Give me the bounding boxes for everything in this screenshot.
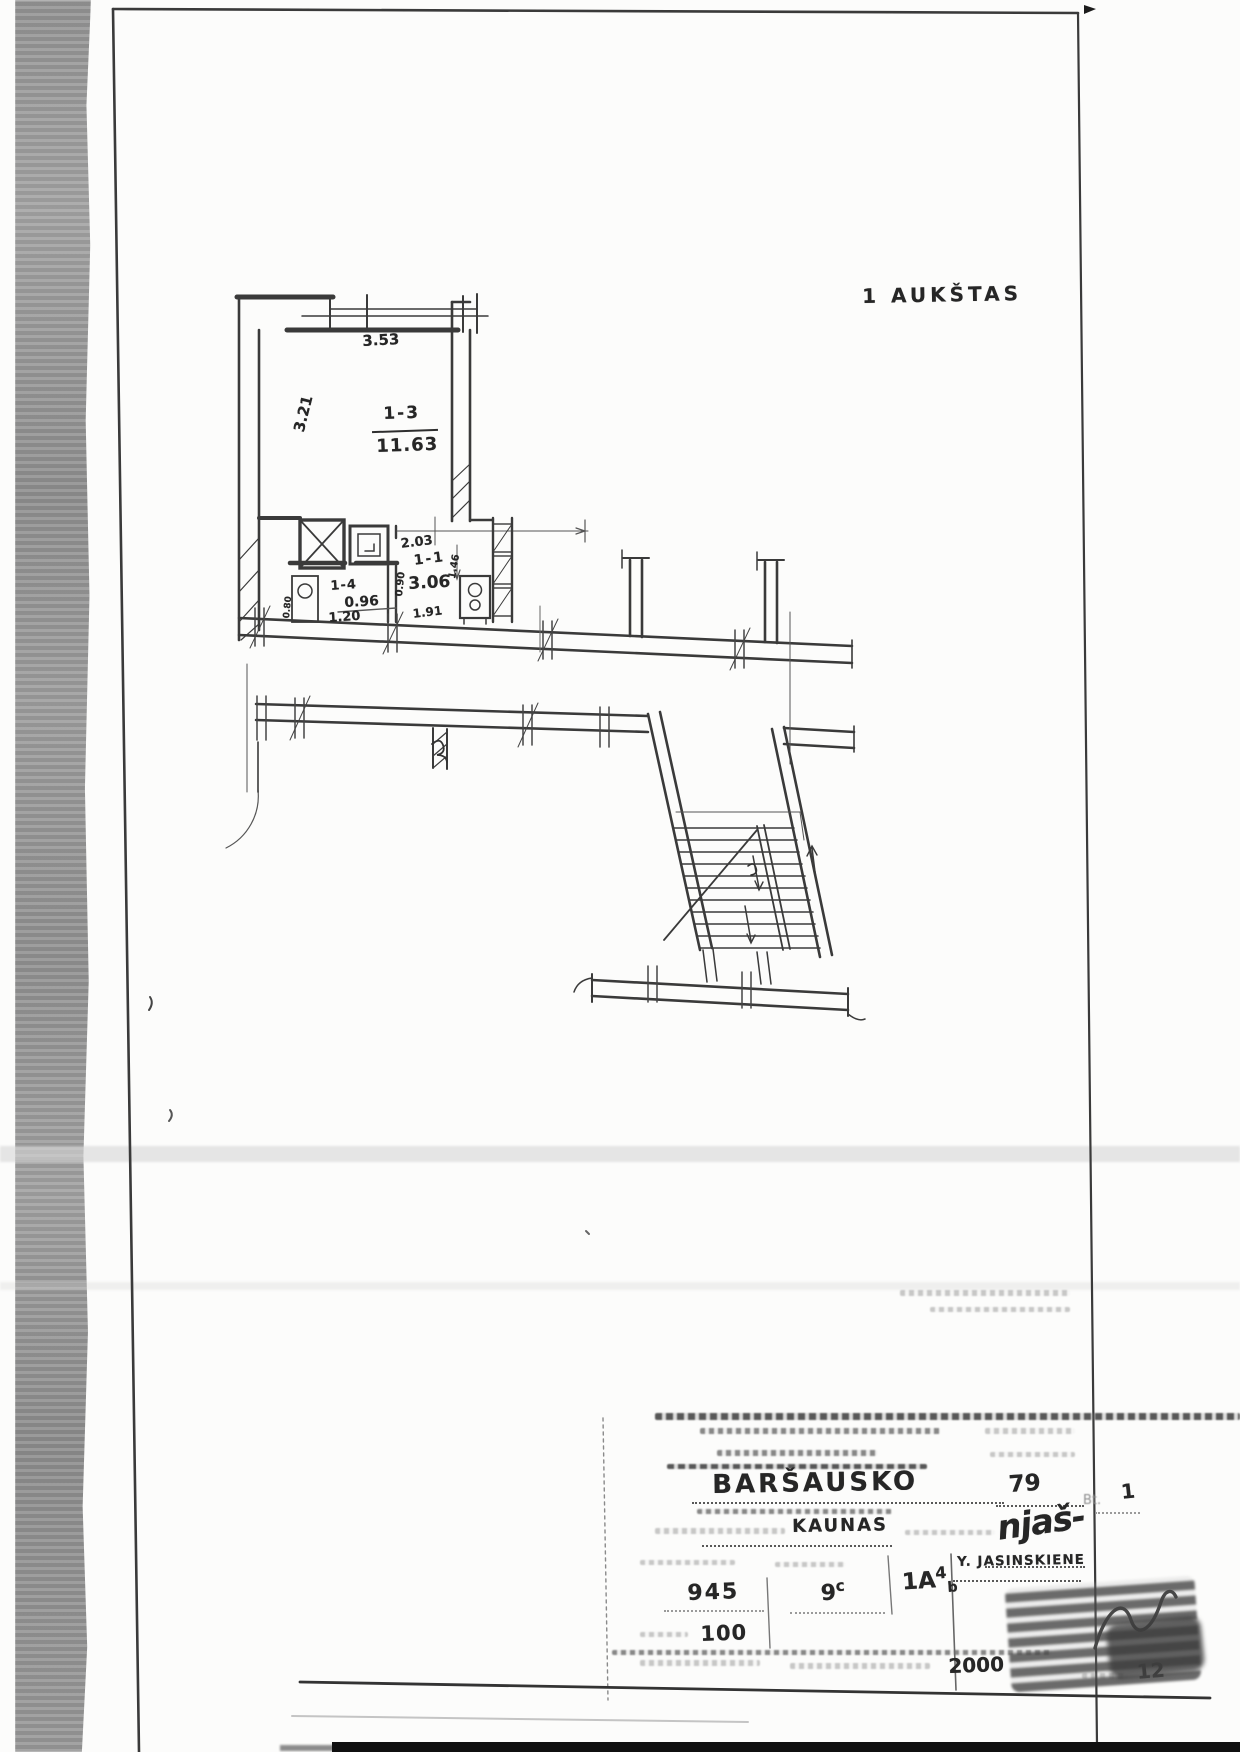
floor-title: 1 AUKŠTAS bbox=[862, 283, 1022, 306]
illegible-cell-caption-2 bbox=[775, 1562, 845, 1567]
city-dotted-line bbox=[702, 1545, 892, 1547]
illegible-corner-text-2 bbox=[930, 1307, 1070, 1312]
room-1-4-area: 0.96 bbox=[344, 594, 379, 610]
illegible-city-caption bbox=[655, 1528, 785, 1534]
city-name: KAUNAS bbox=[792, 1516, 888, 1536]
illegible-corner-text-1 bbox=[900, 1290, 1070, 1296]
apartment-dotted-line bbox=[1095, 1512, 1140, 1514]
illegible-header-row-1a bbox=[700, 1428, 940, 1434]
surveyor-dotted-line bbox=[953, 1580, 1081, 1582]
corridor-walls bbox=[226, 550, 854, 848]
room-1-3-area: 11.63 bbox=[376, 436, 439, 456]
surveyor-name: Y. JASINSKIENE bbox=[957, 1554, 1085, 1570]
illegible-date-text-1 bbox=[640, 1660, 760, 1666]
illegible-header-row-2b bbox=[990, 1452, 1075, 1457]
dim-191-label: 1.91 bbox=[412, 604, 443, 620]
illegible-mid-caption bbox=[905, 1530, 995, 1535]
room-1-3-number: 1-3 bbox=[383, 405, 420, 423]
house-number: 79 bbox=[1008, 1472, 1042, 1497]
year-value: 2000 bbox=[948, 1654, 1004, 1676]
illegible-scale-caption bbox=[640, 1632, 688, 1637]
office-stamp-blob bbox=[1105, 1615, 1205, 1680]
room-1-4-number: 1-4 bbox=[330, 578, 357, 593]
corner-mark-icon bbox=[1084, 5, 1096, 14]
street-name: BARŠAUSKO bbox=[712, 1468, 918, 1498]
street-dotted-line bbox=[692, 1502, 1004, 1504]
dim-203-label: 2.03 bbox=[400, 534, 433, 551]
staircase bbox=[574, 712, 865, 1020]
inventory-number: 945 bbox=[687, 1581, 740, 1605]
dim-120-label: 1.20 bbox=[328, 610, 361, 625]
illegible-header-row-1b bbox=[985, 1428, 1075, 1434]
apartment-number: 1 bbox=[1120, 1481, 1136, 1502]
title-block-top-edge bbox=[655, 1413, 1240, 1420]
illegible-cell-caption-1 bbox=[640, 1560, 735, 1565]
row-divider-smudge-1 bbox=[697, 1509, 892, 1514]
bottom-scan-tail bbox=[280, 1745, 334, 1751]
sheet-dotted-line bbox=[790, 1612, 885, 1614]
scale-value: 100 bbox=[700, 1622, 748, 1645]
dim-353-label: 3.53 bbox=[362, 332, 400, 349]
drawing-canvas bbox=[0, 0, 1240, 1752]
sheet-number: 9c bbox=[820, 1579, 846, 1606]
sheet-frame bbox=[113, 5, 1097, 1752]
bottom-scan-bar bbox=[332, 1742, 1240, 1752]
inventory-dotted-line bbox=[664, 1610, 764, 1612]
illegible-header-row-2a bbox=[717, 1450, 877, 1456]
apartment-label: Bt. bbox=[1083, 1494, 1101, 1507]
format-code: 1A4b bbox=[901, 1564, 958, 1598]
room-1-1-area: 3.06 bbox=[408, 574, 451, 593]
room-1-1-number: 1-1 bbox=[413, 550, 446, 568]
illegible-date-text-2 bbox=[790, 1663, 930, 1669]
